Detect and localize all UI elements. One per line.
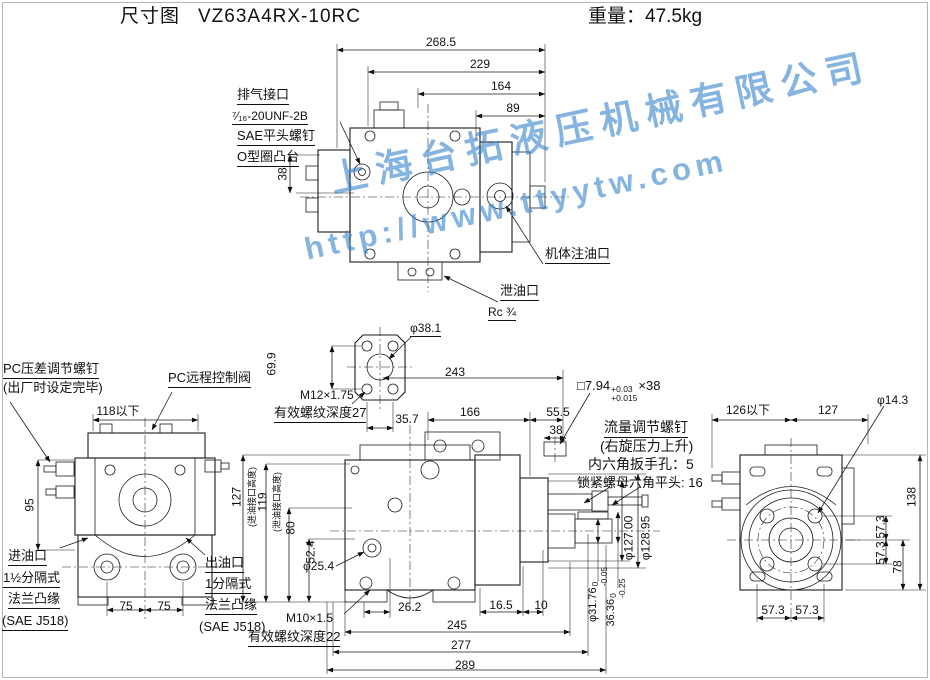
callout-drain-port: 泄油口: [500, 284, 539, 301]
thread-spec-m12: M12×1.75: [300, 389, 354, 402]
thread-spec-m10: M10×1.5: [286, 612, 333, 625]
label-outlet-flange: 法兰凸缘: [205, 598, 257, 615]
dim-phi-25-4: φ25.4: [303, 560, 334, 573]
dim-57-3-bottom-left: 57.3: [761, 604, 784, 617]
label-inlet-standard: (SAE J518): [2, 614, 68, 631]
aux-flange-view-drawing: [332, 327, 566, 476]
dim-69-9: 69.9: [265, 352, 278, 375]
thread-depth-22: 有效螺纹深度22: [248, 630, 340, 647]
callout-vent-port: 排气接口: [237, 88, 289, 105]
dim-phi-14-3: φ14.3: [877, 394, 908, 407]
right-view-drawing: [712, 406, 926, 624]
callout-pc-diff-screw: PC压差调节螺钉: [3, 362, 99, 379]
callout-hex-wrench-size: 内六角扳手孔：5: [588, 457, 694, 473]
dim-38-key: 38: [549, 424, 562, 437]
dim-78: 78: [891, 560, 904, 573]
callout-body-fill-port: 机体注油口: [545, 247, 610, 264]
dim-277: 277: [451, 639, 471, 652]
callout-pc-diff-screw-note: (出厂时设定完毕): [3, 381, 103, 396]
dim-26-2: 26.2: [398, 601, 421, 614]
dim-16-5: 16.5: [489, 599, 512, 612]
dim-phi-38-1: φ38.1: [410, 322, 441, 337]
dim-57-3-bottom-right: 57.3: [795, 604, 818, 617]
dim-127-height: 127: [230, 487, 243, 507]
dim-95: 95: [23, 498, 36, 511]
dim-245: 245: [447, 619, 467, 632]
dim-89: 89: [506, 102, 519, 115]
page-title-model: VZ63A4RX-10RC: [198, 6, 361, 27]
label-inlet-flange: 法兰凸缘: [8, 592, 60, 609]
dim-55-5: 55.5: [546, 406, 569, 419]
dim-75-right: 75: [157, 600, 170, 613]
label-inlet-port: 进油口: [8, 549, 47, 566]
dim-268-5: 268.5: [426, 36, 456, 49]
top-view-drawing: [290, 44, 570, 302]
dim-57-3-upper: 57.3: [874, 515, 887, 538]
dim-289: 289: [455, 659, 475, 672]
dim-119-note: (泄油接口高度): [272, 472, 282, 532]
drawing-linework: [0, 0, 930, 680]
callout-drain-thread: Rc ¾: [488, 306, 516, 321]
dim-119-height: 119: [256, 492, 269, 511]
label-outlet-port: 出油口: [205, 556, 244, 573]
dim-166: 166: [460, 406, 480, 419]
label-inlet-split: 1½分隔式: [3, 571, 60, 588]
dim-phi-127: φ127.00: [622, 516, 635, 560]
dim-57-3-lower: 57.3: [874, 541, 887, 564]
callout-sae-flat-screw: SAE平头螺钉: [237, 129, 315, 146]
dim-127-right: 127: [818, 404, 838, 417]
dimension-drawing-page: 尺寸图 VZ63A4RX-10RC 重量：47.5kg 268.5 229 16…: [0, 0, 930, 680]
dim-35-7: 35.7: [395, 413, 418, 426]
callout-flow-adjust-screw: 流量调节螺钉: [604, 420, 688, 438]
dim-10: 10: [534, 599, 547, 612]
dim-229: 229: [470, 58, 490, 71]
callout-pc-remote-valve: PC远程控制阀: [168, 371, 251, 388]
callout-flow-adjust-note: (右旋压力上升): [600, 439, 693, 455]
weight-label: 重量：47.5kg: [588, 6, 702, 27]
dim-phi-128-95: φ128.95: [639, 516, 652, 560]
dim-138: 138: [905, 487, 918, 507]
dim-75-left: 75: [119, 600, 132, 613]
thread-depth-27: 有效螺纹深度27: [274, 406, 366, 423]
dim-164: 164: [491, 80, 511, 93]
callout-oring-boss: O型圈凸台: [237, 150, 299, 167]
dim-126-max: 126以下: [726, 404, 770, 417]
dim-118-max: 118以下: [96, 405, 139, 418]
label-outlet-split: 1分隔式: [205, 577, 251, 594]
callout-vent-thread: ⁷⁄₁₆-20UNF-2B: [232, 110, 308, 125]
dim-key-height: 36.360-0.25: [605, 578, 627, 627]
key-dimension-spec: □7.94+0.03+0.015×38: [577, 379, 660, 403]
callout-locknut-size: 锁紧螺母六角平头: 16: [577, 476, 703, 491]
page-title-doc-type: 尺寸图: [120, 6, 180, 27]
dim-243: 243: [445, 366, 465, 379]
dim-80-height: 80: [284, 521, 297, 534]
dim-38-vent: 38: [276, 167, 289, 180]
